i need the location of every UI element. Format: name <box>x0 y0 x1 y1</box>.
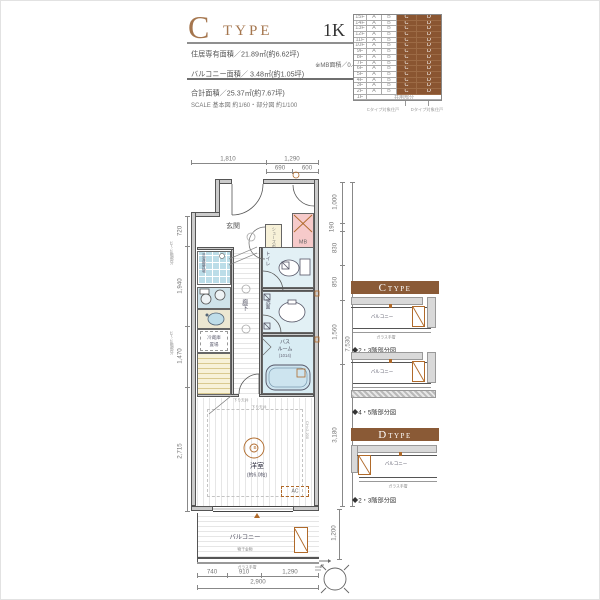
layout-label: 1K <box>323 20 345 41</box>
partition-wall <box>197 247 234 250</box>
tick <box>318 160 319 165</box>
dim-right-830: 830 <box>332 243 339 253</box>
dtype-header-letter: D <box>378 429 386 441</box>
hang-hardware-label: 物干金物 <box>237 546 252 552</box>
tick <box>185 387 190 388</box>
tick <box>318 573 319 578</box>
fridge-label-2: 置場 <box>210 341 219 348</box>
dim-bottom-910: 910 <box>239 569 249 576</box>
table-row-ground: 1F 共用部分 <box>354 95 441 101</box>
washer-label: 洗濯機置場 <box>200 253 206 273</box>
toilet-label: トイレ <box>263 251 271 266</box>
partial-slab <box>351 297 423 305</box>
table-note-c: Cタイプ対象住戸 <box>367 106 399 112</box>
ceiling-dashed-outline <box>207 409 303 497</box>
header-rule-bottom <box>187 78 377 80</box>
tick <box>227 573 228 578</box>
tick <box>350 506 355 507</box>
partial3-caption: ◆2・3階部分図 <box>352 495 396 504</box>
partial-wall <box>427 352 436 383</box>
dtype-header-word: TYPE <box>388 432 412 440</box>
partial1-rail-label: ガラス手摺 <box>377 334 396 340</box>
wall <box>263 179 319 184</box>
tick <box>340 265 345 266</box>
hang-bracket <box>389 359 392 363</box>
dim-left-720: 720 <box>177 226 184 236</box>
partial-rail-outer <box>353 387 431 388</box>
dim-line <box>187 216 188 511</box>
area-line: 住居専有面積／21.89㎡(約6.62坪) <box>191 49 299 59</box>
entrance-door-icon <box>232 184 263 215</box>
tick <box>261 573 262 578</box>
type-letter: C <box>188 9 209 46</box>
dim-right-3180: 3,180 <box>332 427 339 443</box>
tick <box>185 326 190 327</box>
tick <box>191 160 192 165</box>
partition-wall <box>259 394 314 397</box>
tick <box>185 216 190 217</box>
partial2-partition <box>412 361 425 382</box>
corridor-label: 廊下 <box>240 299 249 311</box>
partial2-balcony-label: バルコニー <box>371 368 393 375</box>
tick <box>318 585 319 590</box>
tick <box>337 509 342 510</box>
tick <box>340 300 345 301</box>
tick <box>185 246 190 247</box>
tick <box>340 182 345 183</box>
ctype-header-word: TYPE <box>388 285 412 293</box>
partial-rail-outer <box>353 332 431 333</box>
tick <box>337 559 342 560</box>
table-note-d: Dタイプ対象住戸 <box>411 106 443 112</box>
dim-top-1290: 1,290 <box>284 156 300 163</box>
wall <box>191 212 196 506</box>
ceiling-note-1: 下り天井 <box>233 397 248 403</box>
tick <box>318 169 319 174</box>
hang-bracket <box>389 304 392 308</box>
tick <box>197 573 198 578</box>
balcony-partition <box>294 527 308 553</box>
dtype-partial-header: D TYPE <box>351 428 439 441</box>
dim-right-850: 850 <box>332 277 339 287</box>
partial1-balcony-label: バルコニー <box>371 313 393 320</box>
partial-slab <box>351 352 423 360</box>
partial-slab <box>357 445 437 453</box>
mb-label: MB <box>299 239 307 245</box>
partial-rail-outer <box>359 481 437 482</box>
dim-right-1560: 1,560 <box>332 324 339 340</box>
floor-unit-table: 15FABCD14FABCD13FABCD12FABCD11FABCD10FAB… <box>353 14 442 101</box>
light-symbol-label: B <box>253 446 256 451</box>
room-label: 洋室 <box>250 460 264 471</box>
floorplan-page: C TYPE 1K 住居専有面積／21.89㎡(約6.62坪) ※MB面積／0.… <box>0 0 600 600</box>
tick <box>185 511 190 512</box>
tick <box>340 223 345 224</box>
wall <box>191 506 213 511</box>
balcony-rail-outer <box>197 562 319 564</box>
dim-top-600: 600 <box>302 165 312 172</box>
dim-right-1200: 1,200 <box>331 525 338 541</box>
tick <box>266 160 267 165</box>
ch-note: CH=2,200 <box>305 421 309 439</box>
scale-note: SCALE 基本図 約1/60・部分図 約1/100 <box>191 101 297 110</box>
balcony-label: バルコニー <box>230 531 261 540</box>
ground-label: 共用部分 <box>367 95 441 101</box>
ceiling-note-2: 下り天井 <box>251 404 266 410</box>
closet <box>197 353 231 395</box>
dim-line <box>197 576 319 577</box>
partial3-rail-label: ガラス手摺 <box>389 483 408 489</box>
partial-hatch-band <box>351 390 436 398</box>
compass-icon <box>315 559 349 593</box>
ac-label: AC <box>292 488 299 494</box>
dim-right-total: 7,530 <box>345 336 352 352</box>
type-word: TYPE <box>223 23 273 40</box>
dim-left-2715: 2,715 <box>177 443 184 459</box>
partial2-caption: ◆4・5階部分図 <box>352 407 396 416</box>
partial1-partition <box>412 306 425 327</box>
dim-top-1810: 1,810 <box>220 156 236 163</box>
tick <box>340 506 345 507</box>
stove <box>197 287 231 309</box>
tick <box>340 231 345 232</box>
dim-right-190: 190 <box>329 222 336 232</box>
wall <box>293 506 319 511</box>
partial-wall <box>351 445 358 473</box>
dim-right-1000: 1,000 <box>332 194 339 210</box>
floor-cell: 1F <box>354 95 367 101</box>
partial-rail <box>353 383 431 384</box>
partial3-partition <box>358 455 371 475</box>
floor-note-2: 12〜15階部分 <box>168 331 174 355</box>
dim-bottom-740: 740 <box>207 569 217 576</box>
tick <box>292 169 293 174</box>
dim-line <box>191 163 319 164</box>
tick <box>197 585 198 590</box>
floor-note-1: 12〜15階部分 <box>168 241 174 265</box>
fridge-label-1: 冷蔵庫 <box>207 334 221 341</box>
dim-bottom-1290: 1,290 <box>282 569 298 576</box>
bath-label-2: ルーム <box>278 344 293 352</box>
tick <box>266 169 267 174</box>
genkan-label: 玄関 <box>226 220 240 231</box>
balcony-rail <box>197 557 319 559</box>
wash-label: 洗面 <box>263 299 271 309</box>
sliding-window <box>213 506 293 512</box>
ctype-header-letter: C <box>379 282 386 294</box>
dim-top-690: 690 <box>275 165 285 172</box>
mb-door-icon <box>293 185 314 206</box>
leader-line-c <box>405 101 406 106</box>
ctype-partial-header: C TYPE <box>351 281 439 294</box>
corridor-floor <box>234 250 259 394</box>
partial-rail <box>359 477 437 478</box>
total-line: 合計面積／25.37㎡(約7.67坪) <box>191 88 285 98</box>
dim-bottom-total: 2,900 <box>250 579 266 586</box>
wash-room <box>262 291 314 333</box>
room-size-label: (約6.0帖) <box>247 470 267 478</box>
dim-line <box>197 588 319 589</box>
dim-line-balcony <box>339 509 340 559</box>
floor-table-rows: 15FABCD14FABCD13FABCD12FABCD11FABCD10FAB… <box>354 15 441 95</box>
partial-rail <box>353 328 431 329</box>
header-rule-top <box>187 42 377 44</box>
dim-left-1940: 1,940 <box>177 278 184 294</box>
hang-bracket <box>399 452 402 456</box>
kitchen-sink-counter <box>197 309 231 329</box>
partial-wall <box>427 297 436 328</box>
tick <box>340 364 345 365</box>
balcony-edge <box>197 513 198 562</box>
bath-size-label: (1014) <box>279 354 291 359</box>
tick <box>350 182 355 183</box>
dim-left-1470: 1,470 <box>177 348 184 364</box>
wall <box>314 179 319 506</box>
partial3-balcony-label: バルコニー <box>385 460 407 467</box>
